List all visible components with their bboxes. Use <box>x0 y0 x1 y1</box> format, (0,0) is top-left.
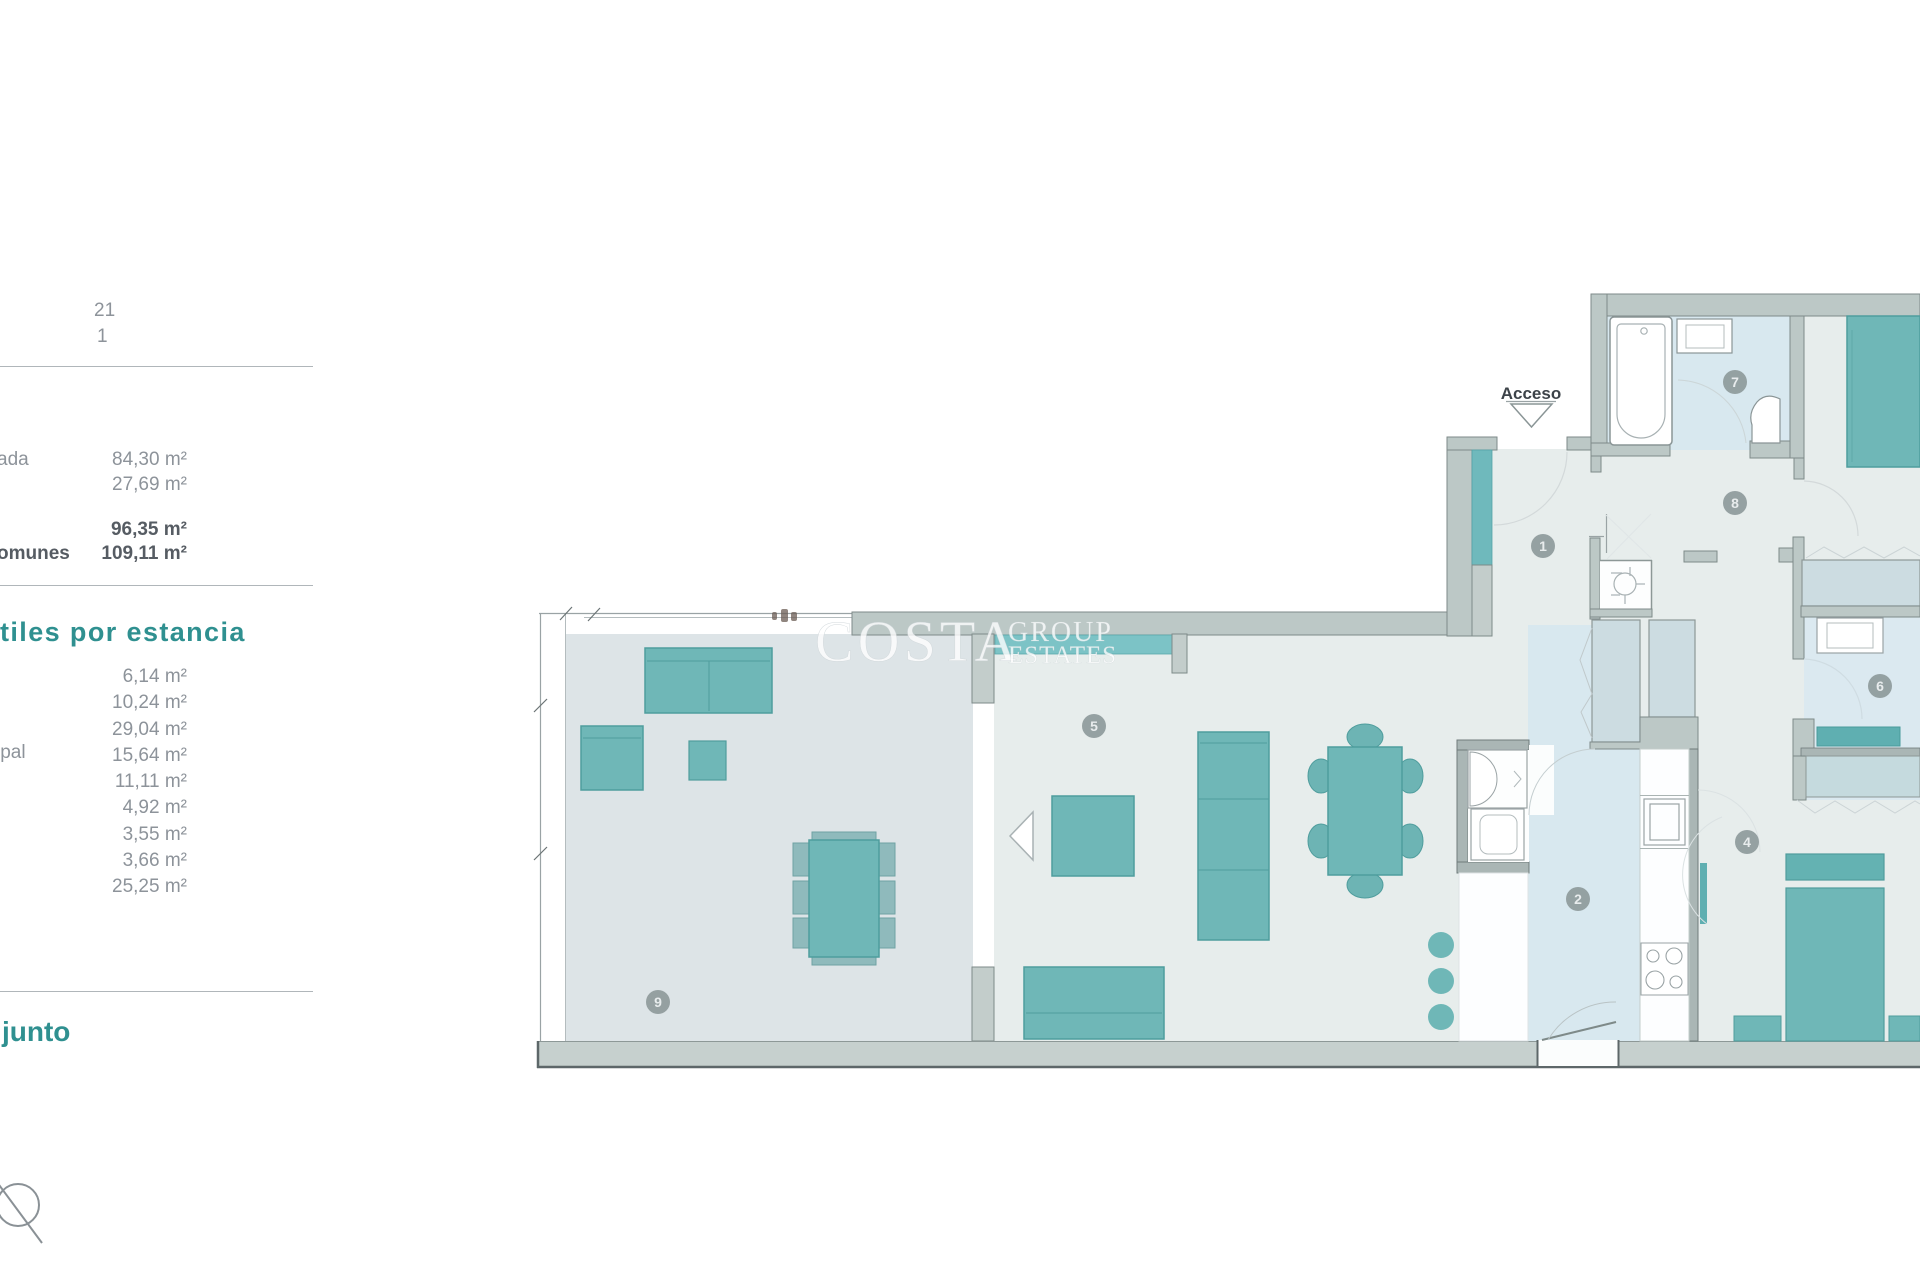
svg-text:5: 5 <box>1090 718 1098 734</box>
svg-text:7: 7 <box>1731 374 1739 390</box>
svg-text:COSTA: COSTA <box>815 609 1021 674</box>
svg-text:4: 4 <box>1743 834 1751 850</box>
svg-text:6: 6 <box>1876 678 1884 694</box>
svg-text:1: 1 <box>1539 538 1547 554</box>
svg-text:8: 8 <box>1731 495 1739 511</box>
svg-text:Acceso: Acceso <box>1501 384 1561 403</box>
svg-text:ESTATES: ESTATES <box>1008 642 1117 669</box>
svg-text:9: 9 <box>654 994 662 1010</box>
svg-text:2: 2 <box>1574 891 1582 907</box>
